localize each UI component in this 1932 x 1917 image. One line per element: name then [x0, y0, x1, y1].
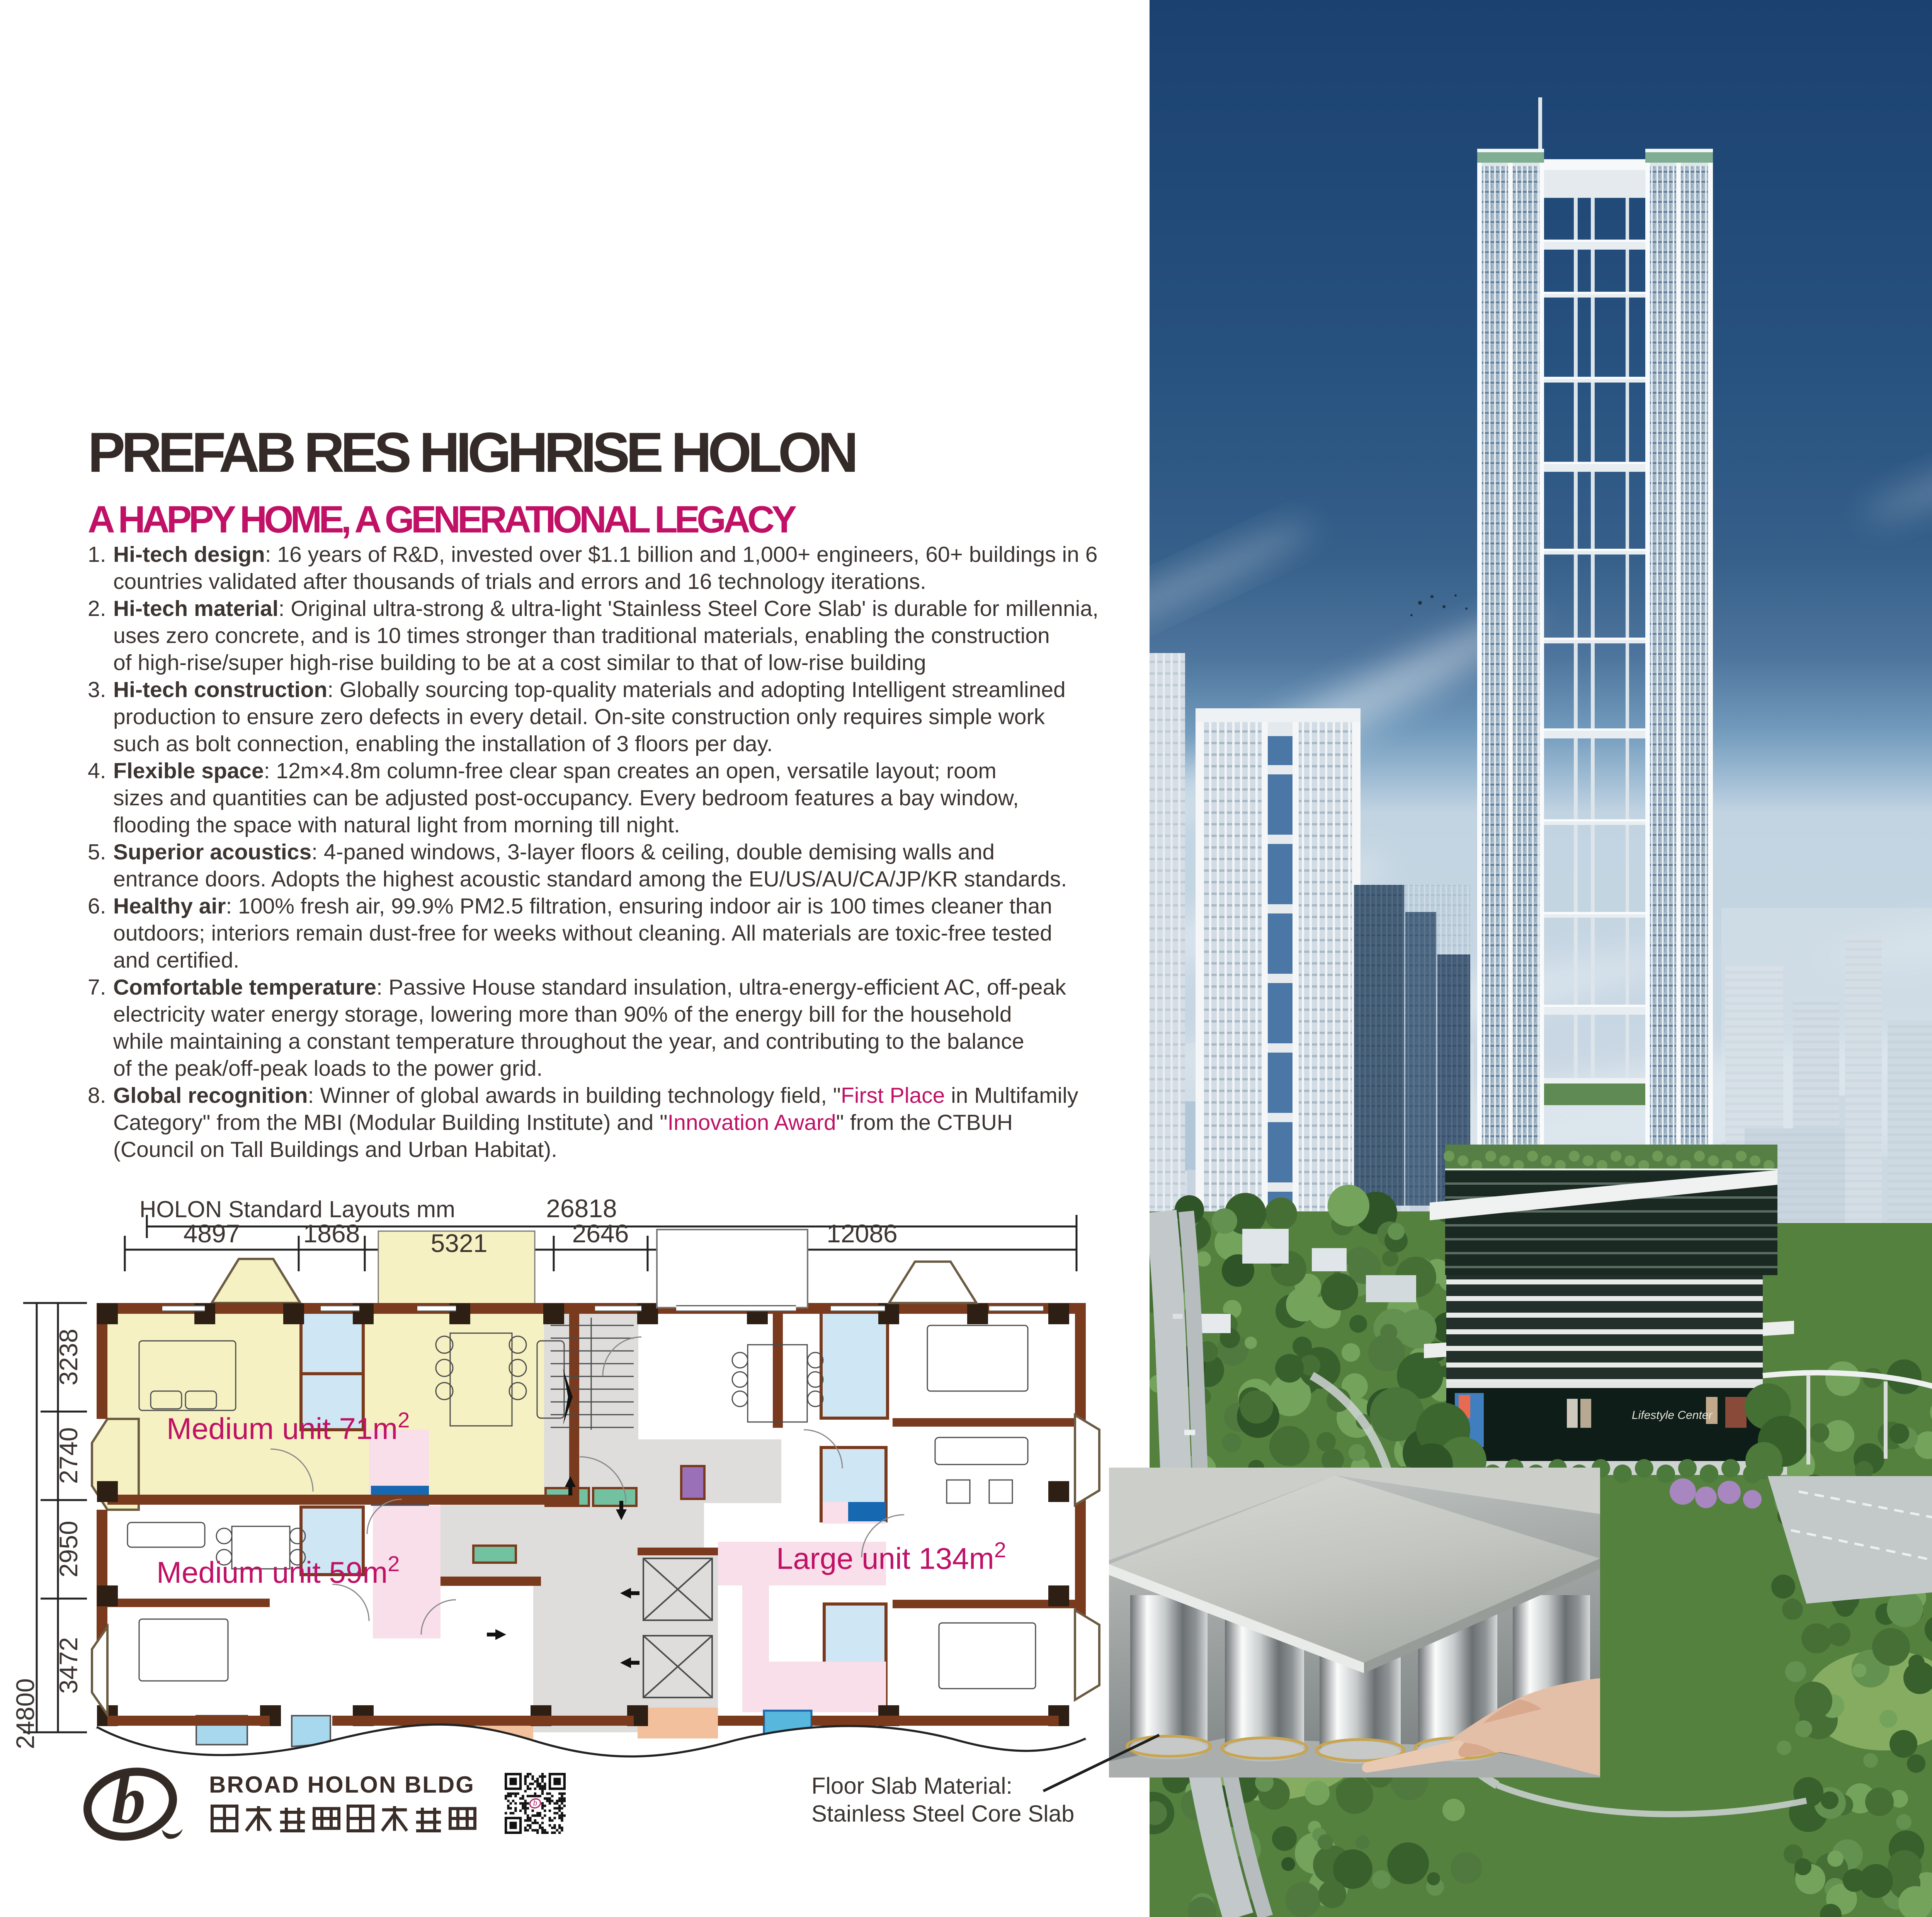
svg-text:Large unit 134m2: Large unit 134m2	[776, 1538, 1006, 1575]
svg-text:5321: 5321	[431, 1229, 488, 1257]
svg-text:12086: 12086	[827, 1219, 898, 1248]
svg-text:b: b	[112, 1764, 146, 1838]
svg-text:Medium unit 71m2: Medium unit 71m2	[167, 1408, 410, 1446]
svg-text:2950: 2950	[54, 1521, 83, 1578]
svg-text:2646: 2646	[572, 1219, 629, 1248]
svg-text:2740: 2740	[54, 1427, 83, 1484]
svg-text:3472: 3472	[54, 1637, 83, 1694]
svg-text:Medium unit 59m2: Medium unit 59m2	[156, 1551, 400, 1589]
svg-text:HOLON Standard Layouts mm: HOLON Standard Layouts mm	[139, 1196, 455, 1222]
svg-text:b: b	[533, 1800, 537, 1808]
svg-text:3238: 3238	[54, 1329, 83, 1386]
svg-text:26818: 26818	[546, 1194, 617, 1223]
svg-text:Lifestyle Center: Lifestyle Center	[1632, 1409, 1713, 1422]
svg-text:1868: 1868	[303, 1219, 360, 1248]
svg-text:24800: 24800	[11, 1678, 39, 1749]
svg-text:4897: 4897	[184, 1219, 240, 1248]
